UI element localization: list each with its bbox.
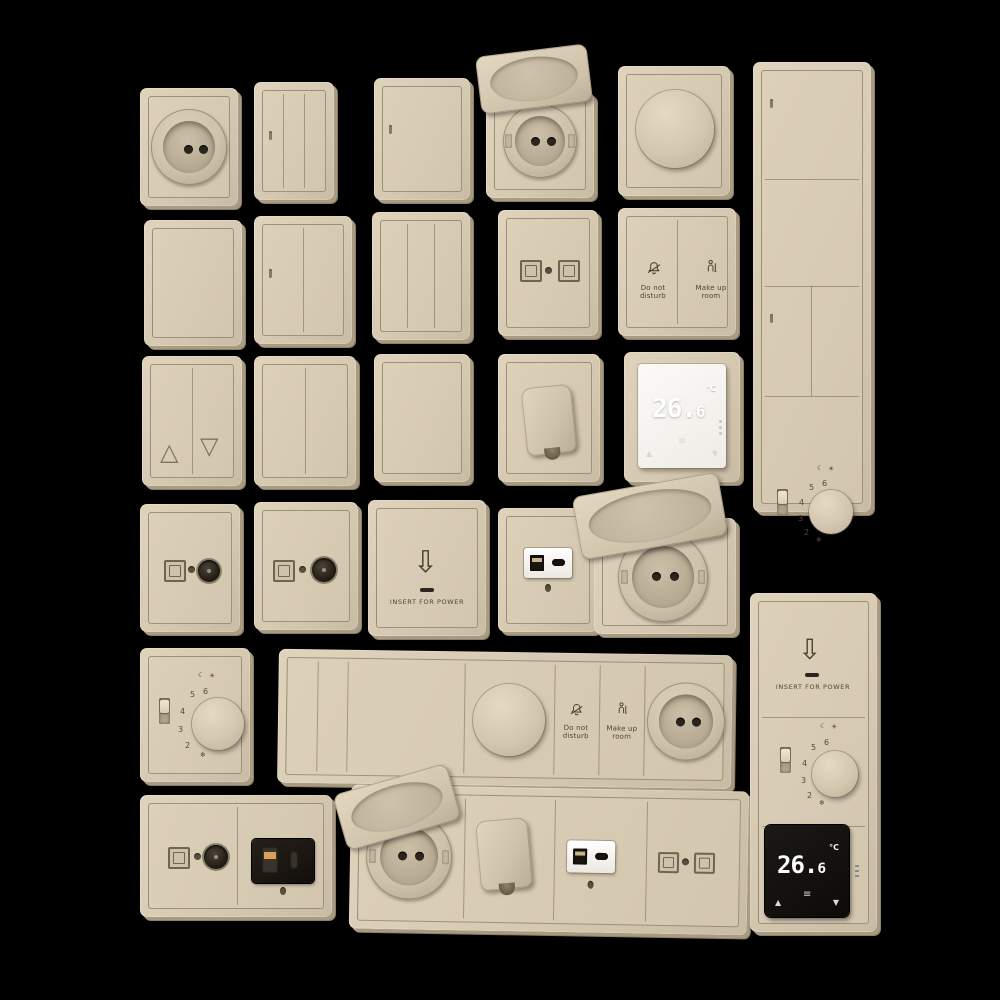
socket-round[interactable] xyxy=(151,109,227,185)
dnd-label-line2: disturb xyxy=(553,732,599,741)
rocker-divider xyxy=(434,224,435,328)
switch-1gang-plate-2 xyxy=(374,354,470,482)
temp-down-button[interactable]: ▲ xyxy=(646,450,652,458)
tv-usb-double-plate xyxy=(140,795,332,917)
socket-pinhole xyxy=(670,572,679,581)
insert-for-power-label: INSERT FOR POWER xyxy=(763,683,863,691)
thermostat-dial: ☾ ☀ 6 5 4 3 2 ❄ xyxy=(155,660,243,768)
frost-icon: ❄ xyxy=(819,800,825,807)
rocker-divider xyxy=(304,94,305,188)
bell-crossed-icon xyxy=(646,260,662,276)
rocker-divider xyxy=(305,368,306,474)
switch-rocker[interactable] xyxy=(152,228,234,338)
insert-card-arrow-icon: ⇩ xyxy=(413,548,438,578)
socket-pinhole xyxy=(531,137,540,146)
render-background: Do not disturb Make up room △ ▽ xyxy=(0,0,1000,1000)
mur-label-line2: room xyxy=(599,732,645,741)
keystone-port[interactable] xyxy=(164,560,186,582)
switch-rockers[interactable] xyxy=(262,224,344,336)
indicator-dot xyxy=(770,314,773,323)
thermostat-knob[interactable] xyxy=(192,698,244,750)
socket-pinhole xyxy=(415,852,424,861)
mur-label-line2: room xyxy=(686,292,736,300)
moon-icon: ☾ xyxy=(198,672,204,679)
keystone-port[interactable] xyxy=(273,560,295,582)
dial-number: 5 xyxy=(811,744,816,752)
socket-well xyxy=(515,116,565,166)
insert-card-arrow-icon: ⇩ xyxy=(798,635,821,665)
button-divider xyxy=(677,220,678,324)
dial-number: 4 xyxy=(180,708,185,716)
indicator-dot xyxy=(269,131,272,140)
socket-well xyxy=(632,546,693,607)
heat-mode-toggle[interactable] xyxy=(777,489,788,515)
make-up-room-button[interactable]: Make up room xyxy=(686,284,736,300)
data-socket-plate xyxy=(498,210,598,336)
dnd-label-line2: disturb xyxy=(628,292,678,300)
sun-icon: ☀ xyxy=(209,673,215,680)
module-divider xyxy=(553,800,556,920)
card-led-slot xyxy=(420,588,434,592)
temp-down-button[interactable]: ▲ xyxy=(775,899,781,907)
module-divider xyxy=(765,179,859,180)
temp-up-button[interactable]: ▼ xyxy=(712,450,718,458)
dial-number: 6 xyxy=(824,739,829,747)
panel-face xyxy=(761,70,863,504)
module-divider xyxy=(463,799,466,919)
switch-2gang-plate-2 xyxy=(254,356,356,486)
usb-c-port[interactable] xyxy=(595,853,608,860)
bell-crossed-icon xyxy=(569,702,584,717)
keystone-port[interactable] xyxy=(694,853,715,874)
usb-module-black xyxy=(252,839,314,883)
thermostat-dial: ☾ ☀ 6 5 4 3 2 ❄ xyxy=(758,711,868,811)
rocker-divider xyxy=(303,228,304,332)
dial-number: 3 xyxy=(801,777,806,785)
blinds-down-button[interactable]: ▽ xyxy=(200,434,218,458)
dimmer-plate xyxy=(618,66,730,196)
multi-frame-panel: Do not disturb Make up room xyxy=(277,649,733,789)
keystone-port[interactable] xyxy=(558,260,580,282)
thermostat-display-white: 26.6 °C ▲ ≡ ▼ xyxy=(638,364,726,468)
switch-rocker[interactable] xyxy=(382,86,462,192)
indicator-dot xyxy=(770,99,773,108)
dial-number: 3 xyxy=(178,726,183,734)
keystone-port[interactable] xyxy=(168,847,190,869)
dimmer-knob[interactable] xyxy=(472,684,545,757)
module-divider xyxy=(643,666,646,776)
celsius-unit: °C xyxy=(706,384,716,393)
rocker-divider xyxy=(192,368,193,474)
round-socket-plate xyxy=(140,88,238,206)
thermostat-dial: ☾ ☀ 6 5 4 3 2 ❄ xyxy=(767,457,867,557)
socket-round[interactable] xyxy=(503,104,577,178)
rocker-divider xyxy=(407,224,408,328)
thermostat-display-black: 26.6 °C ▲ ≡ ▼ xyxy=(765,825,849,917)
dial-number: 5 xyxy=(190,691,195,699)
usb-a-port[interactable] xyxy=(262,847,278,873)
module-divider xyxy=(553,665,556,775)
tv-data-socket-plate xyxy=(254,502,358,630)
moon-icon: ☾ xyxy=(820,723,826,730)
dial-number: 2 xyxy=(807,792,812,800)
indicator-dot xyxy=(389,125,392,134)
socket-pinhole xyxy=(652,572,661,581)
switch-rocker[interactable] xyxy=(382,362,462,474)
make-up-room-button[interactable]: Make up room xyxy=(599,724,645,741)
ground-clip xyxy=(369,849,376,863)
usb-c-port[interactable] xyxy=(290,851,298,869)
indicator-dashes xyxy=(855,865,859,877)
socket-round[interactable] xyxy=(646,682,725,761)
dial-number: 2 xyxy=(804,529,809,537)
module-divider xyxy=(316,661,319,771)
temperature-reading: 26.6 xyxy=(652,394,704,424)
dnd-button[interactable]: Do not disturb xyxy=(553,724,599,741)
center-dot xyxy=(194,853,201,860)
dial-number: 2 xyxy=(185,742,190,750)
sun-icon: ☀ xyxy=(831,724,837,731)
module-divider xyxy=(765,286,859,287)
module-divider xyxy=(346,662,349,772)
usb-c-port[interactable] xyxy=(552,559,565,566)
dnd-label-line1: Do not xyxy=(628,284,678,292)
moon-icon: ☾ xyxy=(817,465,823,472)
fixing-pin xyxy=(545,584,551,592)
center-dot xyxy=(545,267,552,274)
ground-clip xyxy=(621,570,628,584)
blinds-up-button[interactable]: △ xyxy=(160,440,178,464)
dnd-button[interactable]: Do not disturb xyxy=(628,284,678,300)
switch-3gang-plate xyxy=(372,212,470,340)
menu-button[interactable]: ≡ xyxy=(678,438,686,446)
switch-2gang-plate xyxy=(254,216,352,344)
rocker-divider xyxy=(283,94,284,188)
card-led-slot xyxy=(805,673,819,677)
hotel-service-switch-plate: Do not disturb Make up room xyxy=(618,208,736,336)
switch-rockers[interactable] xyxy=(380,220,462,332)
hotel-combo-panel: ⇩ INSERT FOR POWER ☾ ☀ 6 5 4 3 2 ❄ 26.6 … xyxy=(750,593,877,932)
panel-face: Do not disturb Make up room xyxy=(285,657,725,781)
ground-clip xyxy=(698,570,705,584)
dial-number: 4 xyxy=(802,760,807,768)
socket-pinhole xyxy=(398,851,407,860)
socket-pinhole xyxy=(547,137,556,146)
socket-pinhole xyxy=(692,718,701,727)
cable-outlet-plate xyxy=(498,354,600,482)
coax-port[interactable] xyxy=(204,845,228,869)
cable-outlet-spout[interactable] xyxy=(475,817,533,891)
center-dot xyxy=(299,566,306,573)
keystone-port[interactable] xyxy=(658,852,679,873)
dial-number: 3 xyxy=(798,515,803,523)
module-divider xyxy=(237,807,238,905)
thermostat-white-plate: 26.6 °C ▲ ≡ ▼ xyxy=(624,352,740,482)
fixing-pin xyxy=(280,887,286,895)
keystone-port[interactable] xyxy=(520,260,542,282)
dial-number: 4 xyxy=(799,499,804,507)
thermostat-knob[interactable] xyxy=(812,751,858,797)
socket-well xyxy=(659,695,713,749)
temp-up-button[interactable]: ▼ xyxy=(833,899,839,907)
tv-socket-plate xyxy=(140,504,240,632)
switch-1gang-plain-plate xyxy=(144,220,242,346)
menu-button[interactable]: ≡ xyxy=(803,891,811,899)
switch-1gang-plate xyxy=(374,78,470,200)
usb-module xyxy=(524,548,572,578)
usb-a-port[interactable] xyxy=(530,555,544,571)
insert-for-power-label: INSERT FOR POWER xyxy=(377,598,477,606)
ground-clip xyxy=(442,850,449,864)
rocker-divider xyxy=(811,286,812,396)
ground-clip xyxy=(505,134,512,148)
socket-pinhole xyxy=(676,717,685,726)
key-card-holder-plate: ⇩ INSERT FOR POWER xyxy=(368,500,486,636)
coax-port[interactable] xyxy=(312,558,336,582)
center-dot xyxy=(682,858,689,865)
ground-clip xyxy=(568,134,575,148)
frost-icon: ❄ xyxy=(816,537,822,544)
dimmer-knob[interactable] xyxy=(636,90,714,168)
module-divider xyxy=(463,663,466,773)
switch-rockers[interactable] xyxy=(262,90,326,192)
sun-icon: ☀ xyxy=(828,466,834,473)
dial-number: 6 xyxy=(822,480,827,488)
housekeeper-icon xyxy=(704,258,720,274)
temperature-reading: 26.6 xyxy=(777,851,825,879)
celsius-unit: °C xyxy=(829,843,839,852)
mur-label-line1: Make up xyxy=(686,284,736,292)
heat-mode-toggle[interactable] xyxy=(159,698,170,724)
frost-icon: ❄ xyxy=(200,752,206,759)
center-dot xyxy=(188,566,195,573)
thermostat-dial-plate: ☾ ☀ 6 5 4 3 2 ❄ xyxy=(140,648,250,782)
socket-pinhole xyxy=(184,145,193,154)
lid-recess xyxy=(488,52,581,106)
module-divider xyxy=(765,396,859,397)
dial-number: 5 xyxy=(809,484,814,492)
usb-module xyxy=(567,840,616,873)
usb-a-port[interactable] xyxy=(573,848,587,864)
dial-number: 6 xyxy=(203,688,208,696)
cable-outlet-spout[interactable] xyxy=(521,384,578,457)
switch-rockers[interactable] xyxy=(262,364,348,478)
heat-mode-toggle[interactable] xyxy=(780,747,791,773)
blinds-switch-plate: △ ▽ xyxy=(142,356,242,486)
module-divider xyxy=(598,665,601,775)
module-divider xyxy=(645,802,648,922)
switch-3gang-narrow-plate xyxy=(254,82,334,200)
socket-pinhole xyxy=(199,145,208,154)
indicator-dots xyxy=(719,420,722,435)
coax-port[interactable] xyxy=(198,560,220,582)
switch-combo-tall-panel: ☾ ☀ 6 5 4 3 2 ❄ xyxy=(753,62,871,512)
thermostat-knob[interactable] xyxy=(809,490,853,534)
indicator-dot xyxy=(269,269,272,278)
housekeeper-icon xyxy=(615,701,630,716)
